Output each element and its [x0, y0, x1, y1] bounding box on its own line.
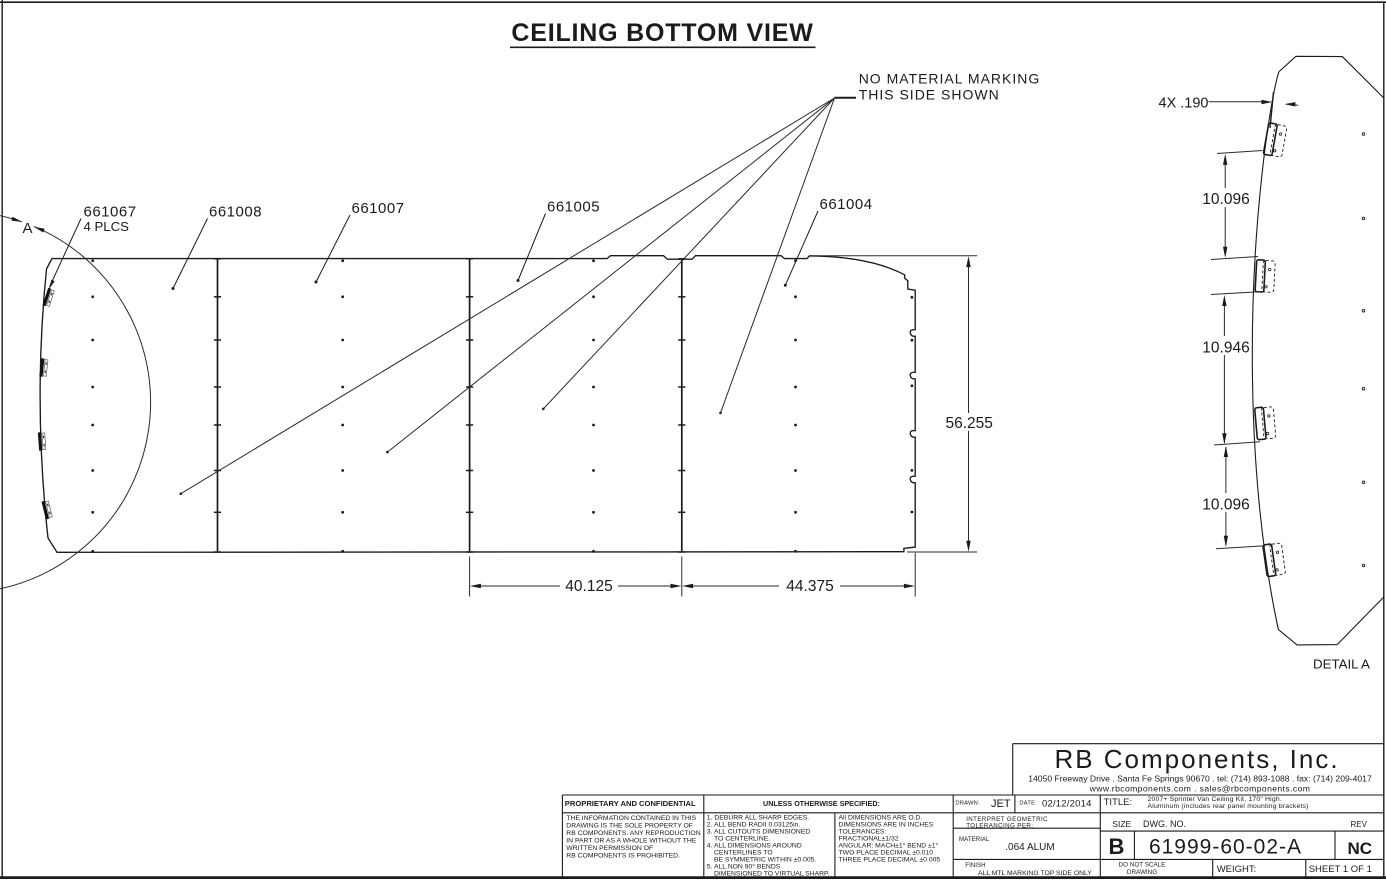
svg-text:TWO PLACE DECIMAL ±0.010: TWO PLACE DECIMAL ±0.010 [839, 850, 934, 857]
svg-text:56.255: 56.255 [945, 415, 992, 432]
svg-text:PROPRIETARY AND CONFIDENTIAL: PROPRIETARY AND CONFIDENTIAL [565, 799, 696, 808]
svg-text:2. ALL BEND RADII 0.03125in.: 2. ALL BEND RADII 0.03125in. [707, 822, 801, 829]
svg-text:RB COMPONENTS IS PROHIBITED.: RB COMPONENTS IS PROHIBITED. [566, 853, 680, 860]
svg-text:CEILING BOTTOM VIEW: CEILING BOTTOM VIEW [511, 19, 813, 47]
svg-text:.064 ALUM: .064 ALUM [1005, 842, 1054, 853]
svg-text:RB COMPONENTS. ANY REPRODUCTI: RB COMPONENTS. ANY REPRODUCTION [566, 830, 700, 837]
svg-text:TO CENTERLINE.: TO CENTERLINE. [714, 836, 770, 843]
svg-text:4X .190: 4X .190 [1159, 96, 1209, 112]
svg-text:All DIMENSIONS ARE O.D.: All DIMENSIONS ARE O.D. [839, 815, 923, 822]
svg-text:NO MATERIAL MARKING: NO MATERIAL MARKING [859, 71, 1041, 87]
svg-text:DATE:: DATE: [1019, 801, 1037, 807]
svg-text:DWG. NO.: DWG. NO. [1143, 819, 1186, 829]
svg-text:DRAWN:: DRAWN: [955, 801, 980, 807]
svg-text:FRACTIONAL±1/32: FRACTIONAL±1/32 [839, 836, 899, 843]
svg-text:THIS SIDE SHOWN: THIS SIDE SHOWN [859, 87, 1000, 103]
svg-text:661008: 661008 [209, 204, 262, 221]
svg-text:MATERIAL: MATERIAL [959, 836, 990, 843]
svg-text:JET: JET [991, 798, 1011, 810]
svg-text:DIMENSIONS ARE IN INCHES: DIMENSIONS ARE IN INCHES [839, 822, 934, 829]
svg-text:ALL MTL MARKING TOP SIDE ONLY: ALL MTL MARKING TOP SIDE ONLY [978, 870, 1092, 877]
svg-text:661004: 661004 [820, 196, 873, 213]
svg-text:4. ALL DIMENSIONS AROUND: 4. ALL DIMENSIONS AROUND [707, 843, 802, 850]
svg-text:TITLE:: TITLE: [1104, 797, 1133, 808]
svg-text:3. ALL CUTOUTS DIMENSIONED: 3. ALL CUTOUTS DIMENSIONED [707, 829, 811, 836]
svg-text:B: B [1108, 834, 1124, 859]
svg-text:A: A [23, 220, 34, 237]
svg-text:02/12/2014: 02/12/2014 [1042, 799, 1092, 810]
svg-text:TOLERANCING PER:: TOLERANCING PER: [966, 823, 1033, 830]
svg-text:5. ALL NON 90° BENDS: 5. ALL NON 90° BENDS [707, 863, 781, 871]
svg-text:www.rbcomponents.com . sales@r: www.rbcomponents.com . sales@rbcomponent… [1089, 784, 1311, 794]
svg-text:10.096: 10.096 [1202, 191, 1249, 208]
svg-text:661067: 661067 [84, 204, 137, 221]
svg-text:TOLERANCES:: TOLERANCES: [839, 829, 887, 836]
svg-text:WEIGHT:: WEIGHT: [1217, 864, 1257, 875]
svg-text:SIZE: SIZE [1112, 819, 1131, 829]
svg-text:4 PLCS: 4 PLCS [84, 219, 130, 234]
svg-text:661007: 661007 [352, 200, 405, 217]
svg-text:FINISH: FINISH [965, 862, 985, 869]
svg-text:DETAIL A: DETAIL A [1313, 657, 1370, 672]
svg-text:UNLESS OTHERWISE SPECIFIED:: UNLESS OTHERWISE SPECIFIED: [763, 799, 880, 808]
svg-text:SHEET 1 OF 1: SHEET 1 OF 1 [1309, 864, 1372, 875]
svg-text:NC: NC [1348, 839, 1373, 858]
svg-text:661005: 661005 [547, 199, 600, 216]
svg-text:DO NOT SCALE: DO NOT SCALE [1119, 862, 1166, 869]
svg-text:THE INFORMATION CONTAINED IN T: THE INFORMATION CONTAINED IN THIS [566, 815, 696, 822]
svg-text:10.096: 10.096 [1202, 497, 1249, 514]
svg-text:61999-60-02-A: 61999-60-02-A [1149, 836, 1302, 859]
svg-text:DIMENSIONED TO VIRTUAL SHARP.: DIMENSIONED TO VIRTUAL SHARP. [714, 871, 830, 878]
svg-text:BE SYMMETRIC WITHIN ±0.005.: BE SYMMETRIC WITHIN ±0.005. [714, 857, 816, 864]
svg-text:1. DEBURR ALL SHARP EDGES.: 1. DEBURR ALL SHARP EDGES. [707, 815, 809, 822]
svg-text:CENTERLINES TO: CENTERLINES TO [714, 850, 773, 857]
svg-text:DRAWING IS THE SOLE PROPERTY O: DRAWING IS THE SOLE PROPERTY OF [566, 823, 693, 830]
svg-text:ANGULAR: MACH±1° BEND ±1°: ANGULAR: MACH±1° BEND ±1° [839, 842, 939, 850]
svg-text:DRAWING: DRAWING [1127, 869, 1157, 876]
svg-text:THREE PLACE DECIMAL ±0.005: THREE PLACE DECIMAL ±0.005 [839, 857, 941, 864]
svg-text:REV: REV [1351, 820, 1368, 829]
svg-text:Aluminum (includes rear panel: Aluminum (includes rear panel mounting b… [1148, 803, 1309, 810]
svg-text:2007+ Sprinter Van Ceiling Kit: 2007+ Sprinter Van Ceiling Kit, 170" Hig… [1148, 796, 1282, 803]
svg-text:WRITTEN PERMISSION OF: WRITTEN PERMISSION OF [566, 845, 653, 852]
svg-text:14050 Freeway Drive . Santa Fe: 14050 Freeway Drive . Santa Fe Springs 9… [1028, 774, 1372, 784]
svg-text:44.375: 44.375 [786, 578, 833, 595]
svg-text:10.946: 10.946 [1202, 340, 1249, 357]
svg-text:RB Components, Inc.: RB Components, Inc. [1054, 744, 1339, 774]
svg-text:40.125: 40.125 [565, 578, 612, 595]
svg-text:IN PART OR AS A WHOLE WITHOUT: IN PART OR AS A WHOLE WITHOUT THE [566, 838, 697, 845]
